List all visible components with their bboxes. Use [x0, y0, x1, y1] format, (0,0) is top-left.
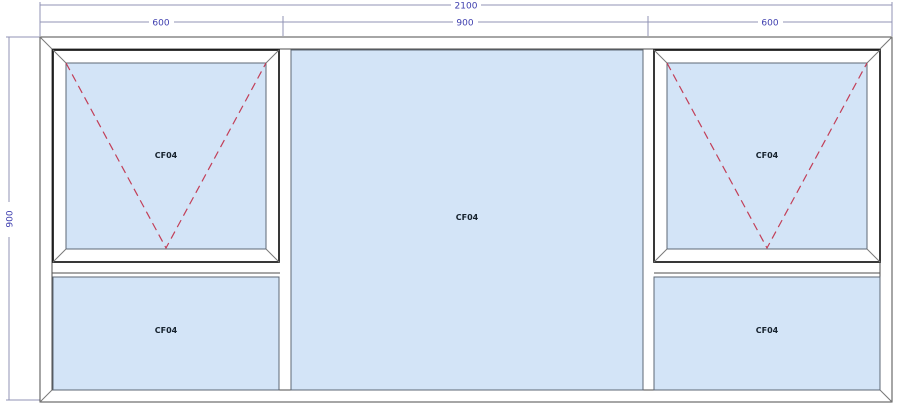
- panel-right-bottom-fixed: CF04: [654, 273, 880, 390]
- dimension-segment-middle: 900: [456, 19, 473, 29]
- panel-label: CF04: [456, 213, 479, 222]
- panel-middle-fixed: CF04: [291, 50, 643, 390]
- dimension-overall-height: 900: [6, 210, 16, 227]
- panel-left-bottom-fixed: CF04: [52, 273, 280, 390]
- dimension-overall-width: 2100: [455, 2, 478, 12]
- window-elevation-drawing: 2100 600 900 600 900: [0, 0, 900, 405]
- panel-label: CF04: [756, 151, 779, 160]
- panel-label: CF04: [155, 326, 178, 335]
- panel-label: CF04: [756, 326, 779, 335]
- dimension-segment-left: 600: [152, 19, 169, 29]
- panel-right-top-sash: CF04: [654, 50, 880, 262]
- panel-label: CF04: [155, 151, 178, 160]
- top-dimension-segments: 600 900 600: [40, 16, 892, 36]
- dimension-segment-right: 600: [761, 19, 778, 29]
- left-dimension-height: 900: [3, 37, 40, 400]
- drawing-canvas: 2100 600 900 600 900: [0, 0, 900, 405]
- panel-left-top-sash: CF04: [53, 50, 279, 262]
